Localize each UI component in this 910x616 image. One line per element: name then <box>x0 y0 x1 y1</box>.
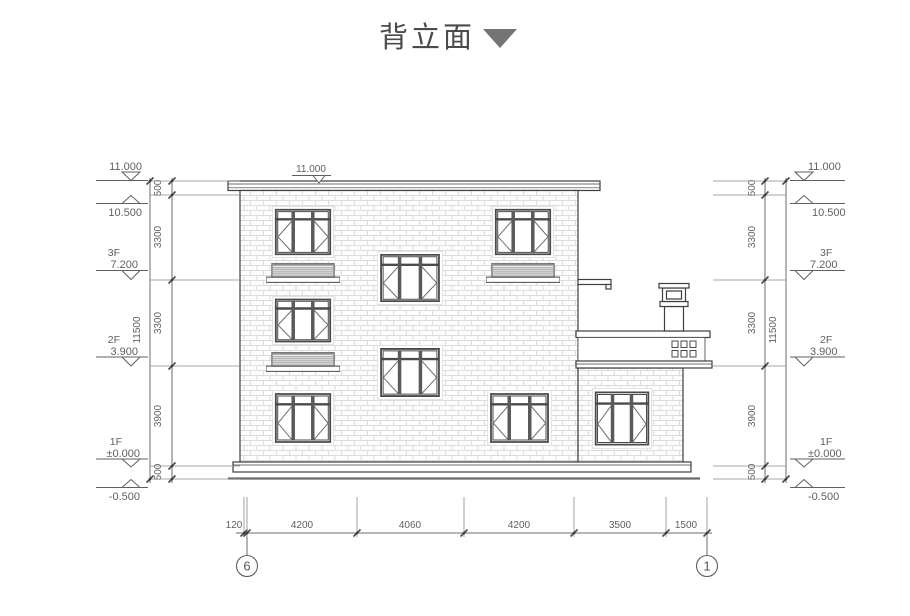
plinth <box>233 462 691 472</box>
dim-text: 1500 <box>675 520 698 531</box>
dim-text: 3300 <box>153 225 164 248</box>
elevation-label: 10.500 <box>812 207 846 219</box>
floor-label: 2F <box>108 334 120 346</box>
floor-label: 2F <box>820 334 832 346</box>
louver-3f-left <box>266 263 340 282</box>
dim-text: 500 <box>747 179 758 196</box>
page-title: 背立面 <box>379 21 475 54</box>
floor-label: 1F <box>820 436 832 448</box>
right-elevation-markers: 11.000 10.500 3F 7.200 2F 3.900 <box>790 161 846 503</box>
elevation-label: -0.500 <box>808 491 839 503</box>
elevation-label: 3.900 <box>110 346 138 358</box>
marker-base: -0.500 <box>790 480 845 504</box>
dim-text: 3900 <box>747 404 758 427</box>
floor-label: 3F <box>108 247 120 259</box>
dim-text: 3300 <box>153 311 164 334</box>
building: 11.000 <box>228 164 712 479</box>
dim-total-text: 11500 <box>768 316 779 344</box>
window-1f-middle <box>488 391 552 446</box>
marker-10500: 10.500 <box>790 196 846 220</box>
canopy <box>578 280 611 290</box>
louver-3f-right <box>486 263 560 282</box>
elevation-label: 11.000 <box>808 161 841 173</box>
window-1f-right <box>593 389 652 449</box>
marker-11000: 11.000 <box>790 161 845 181</box>
elevation-label: 7.200 <box>810 259 838 271</box>
dim-text: 500 <box>153 179 164 196</box>
window-stair-lower <box>378 346 443 400</box>
roof-elevation-value: 11.000 <box>296 164 326 175</box>
grid-bubble-right: 1 <box>697 556 718 577</box>
elevation-label: -0.500 <box>109 491 140 503</box>
chimney <box>659 284 689 332</box>
dim-text: 4060 <box>399 520 422 531</box>
marker-base: -0.500 <box>96 480 148 504</box>
dim-text: 3500 <box>609 520 632 531</box>
marker-1f: 1F ±0.000 <box>790 436 845 467</box>
marker-1f: 1F ±0.000 <box>96 436 148 467</box>
window-stair-upper <box>378 252 443 305</box>
left-dimension-stack: 11.000 10.500 3F 7.200 2F 3.900 <box>96 161 172 503</box>
dim-text: 3900 <box>153 404 164 427</box>
dim-text: 4200 <box>291 520 314 531</box>
dim-text: 3300 <box>747 311 758 334</box>
elevation-label: ±0.000 <box>106 448 140 460</box>
right-dimension-stack: 11.000 10.500 3F 7.200 2F 3.900 <box>747 161 846 503</box>
elevation-label: 10.500 <box>108 207 142 219</box>
marker-3f: 3F 7.200 <box>96 247 148 280</box>
marker-10500: 10.500 <box>96 196 148 220</box>
roof-elevation-marker: 11.000 <box>292 164 331 183</box>
marker-3f: 3F 7.200 <box>790 247 845 280</box>
title-block: 背立面 <box>379 21 517 54</box>
elevation-label: 11.000 <box>109 161 142 173</box>
bottom-dimension-line: 120 4200 4060 4200 3500 1500 <box>226 520 712 555</box>
back-elevation-drawing: 背立面 <box>0 0 910 616</box>
grid-bubble-left: 6 <box>237 556 258 577</box>
window-3f-right <box>493 207 554 258</box>
elevation-label: 7.200 <box>110 259 138 271</box>
dim-text: 4200 <box>508 520 531 531</box>
parapet <box>576 331 712 368</box>
marker-2f: 2F 3.900 <box>790 334 845 366</box>
grid-number: 6 <box>243 559 250 574</box>
window-3f-left <box>273 207 334 258</box>
left-dim-texts: 500 3300 3300 3900 500 11500 <box>132 179 164 480</box>
title-triangle-icon <box>483 29 517 48</box>
elevation-label: ±0.000 <box>808 448 842 460</box>
dim-total-text: 11500 <box>132 316 143 344</box>
floor-label: 1F <box>110 436 122 448</box>
window-2f-left <box>273 297 334 345</box>
right-dim-texts: 500 3300 3300 3900 500 11500 <box>747 179 779 480</box>
roof-slab <box>228 181 600 191</box>
louver-2f-left <box>266 352 340 371</box>
bottom-dim-texts: 120 4200 4060 4200 3500 1500 <box>226 520 698 531</box>
dim-text: 3300 <box>747 225 758 248</box>
elevation-sheet: 背立面 <box>0 0 910 616</box>
floor-label: 3F <box>820 247 832 259</box>
marker-11000: 11.000 <box>96 161 148 181</box>
window-1f-left <box>273 391 334 446</box>
dim-text: 120 <box>226 520 243 531</box>
elevation-label: 3.900 <box>810 346 838 358</box>
grid-number: 1 <box>703 559 710 574</box>
